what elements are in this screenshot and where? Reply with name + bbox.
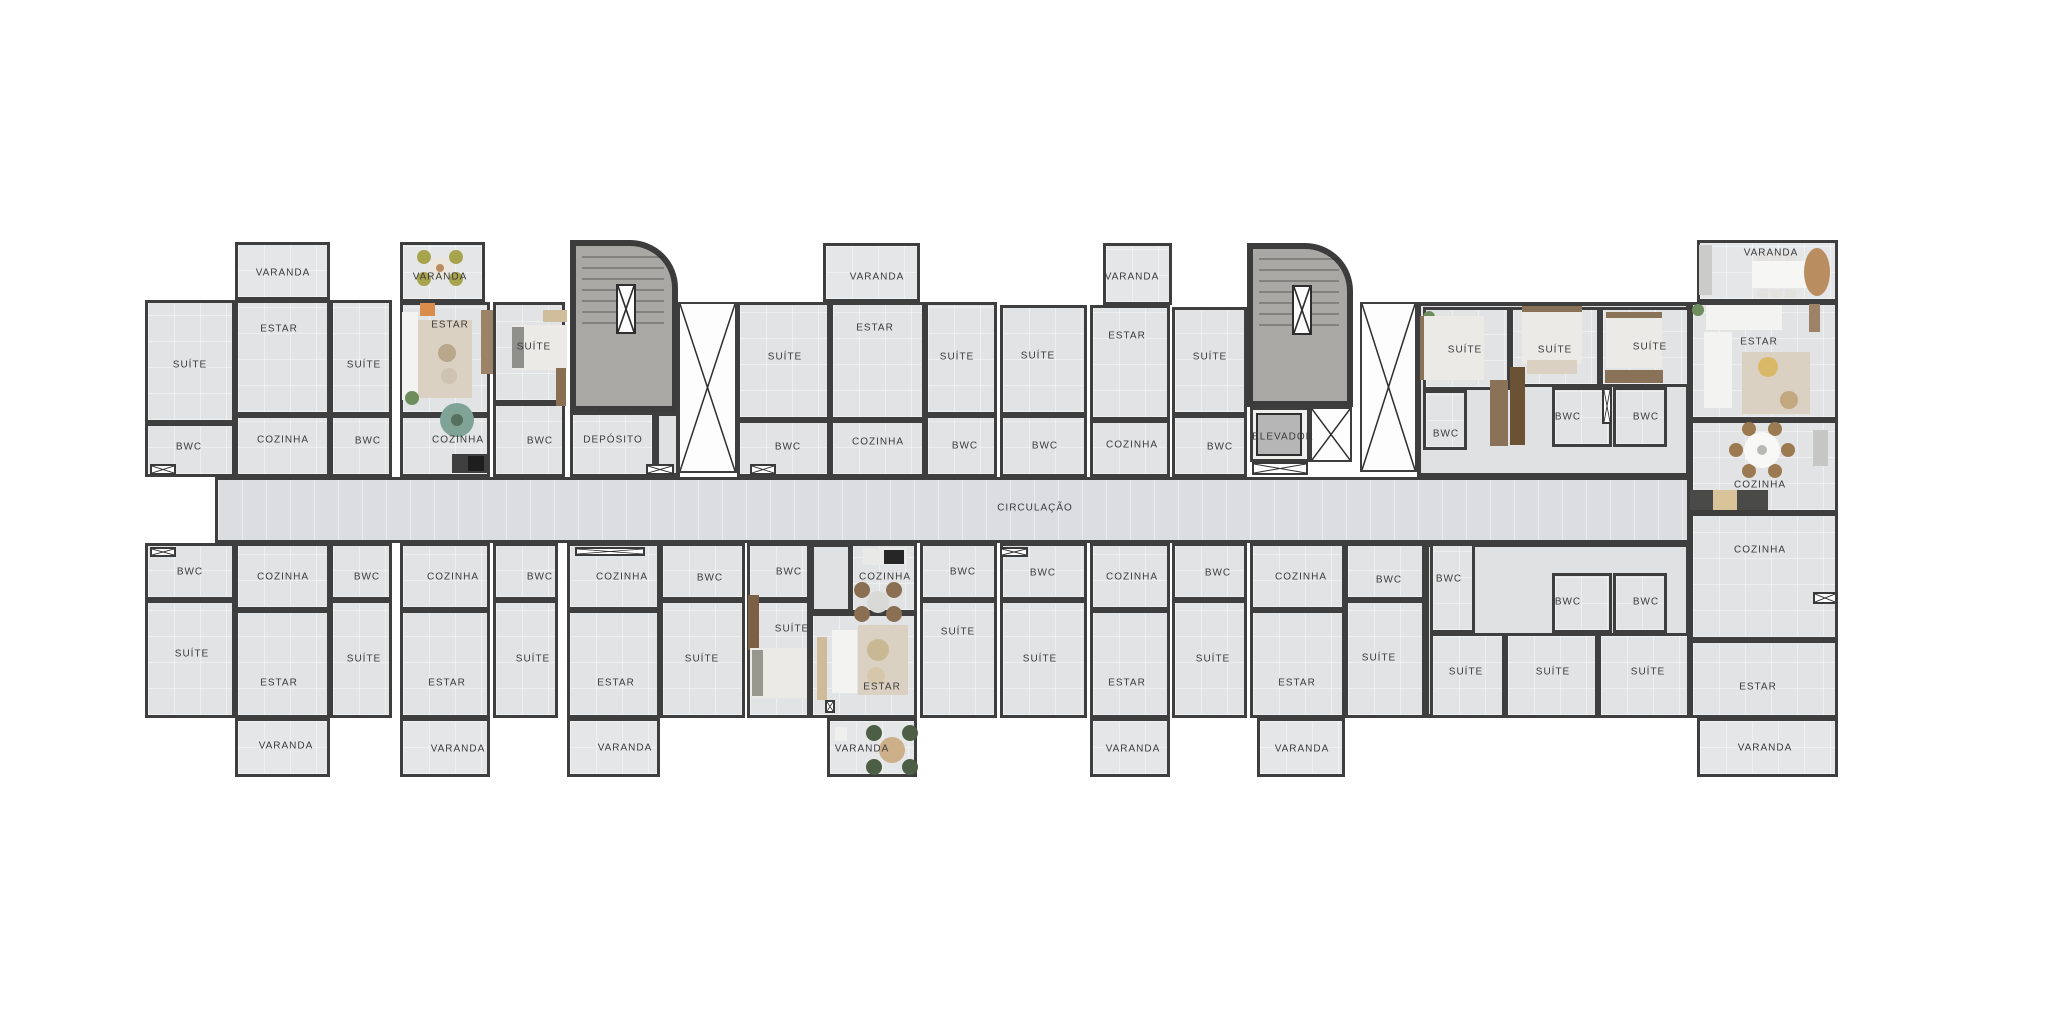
room-label: BWC <box>1205 568 1231 579</box>
room-label: COZINHA <box>859 572 911 583</box>
room-label: SUÍTE <box>1362 653 1396 664</box>
room-label: ESTAR <box>260 678 298 689</box>
room-cozinha <box>830 420 925 477</box>
furniture-round <box>417 250 431 264</box>
room-label: COZINHA <box>1275 572 1327 583</box>
duct-shaft <box>1000 547 1028 557</box>
room-label: BWC <box>1032 441 1058 452</box>
room-estar <box>235 300 330 415</box>
furniture-piece <box>556 368 566 406</box>
room-label: BWC <box>1555 597 1581 608</box>
room-label: SUÍTE <box>517 342 551 353</box>
duct-shaft <box>150 464 176 475</box>
furniture-round <box>886 606 902 622</box>
furniture-piece <box>1757 289 1768 298</box>
furniture-round <box>1781 443 1795 457</box>
furniture-piece <box>748 595 759 650</box>
room-label: VARANDA <box>431 744 486 755</box>
room-label: BWC <box>697 573 723 584</box>
x-brace-icon <box>152 549 174 555</box>
room-label: BWC <box>950 567 976 578</box>
room-label: SUÍTE <box>1023 654 1057 665</box>
furniture-round <box>866 759 882 775</box>
room-label: VARANDA <box>1275 744 1330 755</box>
room-label: BWC <box>1633 597 1659 608</box>
room-label: ESTAR <box>1740 337 1778 348</box>
duct-shaft <box>575 547 645 556</box>
furniture-piece <box>1809 304 1820 332</box>
room-label: BWC <box>527 572 553 583</box>
x-brace-icon <box>577 549 643 554</box>
furniture-round <box>886 582 902 598</box>
furniture-round <box>1758 357 1778 377</box>
room-label: BWC <box>527 436 553 447</box>
room-label: VARANDA <box>1106 744 1161 755</box>
furniture-piece <box>543 310 567 322</box>
room-label: ESTAR <box>856 323 894 334</box>
x-brace-icon <box>1002 549 1026 555</box>
room-label: ESTAR <box>428 678 466 689</box>
x-brace-icon <box>648 466 672 473</box>
room-label: SUÍTE <box>1633 342 1667 353</box>
furniture-round <box>902 759 918 775</box>
void-shaft <box>678 302 737 473</box>
room-label: SUÍTE <box>1536 667 1570 678</box>
room-label: BWC <box>177 567 203 578</box>
room-label: VARANDA <box>1738 743 1793 754</box>
room-label: VARANDA <box>1105 272 1160 283</box>
room-label: BWC <box>952 441 978 452</box>
furniture-piece <box>1771 289 1782 298</box>
furniture-piece <box>1605 370 1663 383</box>
room-label: COZINHA <box>1106 572 1158 583</box>
room-label: DEPÓSITO <box>583 435 643 446</box>
room-label: SUÍTE <box>768 352 802 363</box>
corridor <box>215 477 1690 543</box>
room-label: COZINHA <box>257 435 309 446</box>
room-label: BWC <box>354 572 380 583</box>
void-shaft <box>1360 302 1417 472</box>
room-label: SUÍTE <box>1449 667 1483 678</box>
stair-landing-void <box>616 284 636 334</box>
corridor-label: CIRCULAÇÃO <box>997 503 1073 514</box>
x-brace-icon <box>680 304 735 471</box>
room-suite <box>920 600 997 718</box>
furniture-piece <box>481 310 493 374</box>
room-label: SUÍTE <box>775 624 809 635</box>
furniture-round <box>405 391 419 405</box>
furniture-piece <box>468 456 484 471</box>
room-cozinha <box>235 415 330 477</box>
room-label: COZINHA <box>596 572 648 583</box>
furniture-round <box>449 250 463 264</box>
room-label: ESTAR <box>1108 331 1146 342</box>
duct-shaft <box>646 464 674 475</box>
x-brace-icon <box>827 702 833 711</box>
furniture-piece <box>835 727 847 741</box>
room-label: ESTAR <box>1108 678 1146 689</box>
x-brace-icon <box>1604 390 1610 422</box>
room-label: BWC <box>776 567 802 578</box>
room-label: VARANDA <box>413 272 468 283</box>
furniture-piece <box>1510 367 1525 445</box>
room-label: BWC <box>1555 412 1581 423</box>
x-brace-icon <box>1294 287 1310 333</box>
room-label: SUÍTE <box>1448 345 1482 356</box>
room-label: ESTAR <box>260 324 298 335</box>
furniture-piece <box>752 650 763 696</box>
furniture-round <box>1757 445 1767 455</box>
room-label: VARANDA <box>850 272 905 283</box>
room-label: COZINHA <box>427 572 479 583</box>
stair-landing-void <box>1292 285 1312 335</box>
hall-area <box>810 543 852 613</box>
furniture-round <box>902 725 918 741</box>
furniture-piece <box>1706 305 1782 330</box>
room-label: SUÍTE <box>1538 345 1572 356</box>
duct-shaft <box>1602 388 1612 424</box>
room-label: ESTAR <box>431 320 469 331</box>
room-suite <box>330 300 392 415</box>
room-label: SUÍTE <box>1631 667 1665 678</box>
duct-shaft <box>825 700 835 713</box>
floor-plan-canvas: SUÍTEBWCVARANDAESTARCOZINHASUÍTEBWCVARAN… <box>0 0 2048 1024</box>
room-label: BWC <box>775 442 801 453</box>
room-bwc <box>660 543 745 600</box>
room-label: SUÍTE <box>1193 352 1227 363</box>
room-label: SUÍTE <box>940 352 974 363</box>
furniture-piece <box>1804 248 1830 296</box>
furniture-piece <box>1522 312 1582 364</box>
furniture-piece <box>1704 332 1732 408</box>
duct-shaft <box>1252 462 1308 475</box>
furniture-round <box>867 639 889 661</box>
room-label: ESTAR <box>1739 682 1777 693</box>
duct-shaft <box>1813 592 1837 604</box>
furniture-round <box>1768 464 1782 478</box>
furniture-round <box>854 606 870 622</box>
room-label: SUÍTE <box>1021 351 1055 362</box>
room-estar <box>235 610 330 718</box>
room-label: VARANDA <box>259 741 314 752</box>
room-label: VARANDA <box>598 743 653 754</box>
room-label: VARANDA <box>835 744 890 755</box>
furniture-piece <box>402 312 418 400</box>
furniture-round <box>866 725 882 741</box>
room-label: COZINHA <box>257 572 309 583</box>
room-estar <box>400 610 490 718</box>
x-brace-icon <box>152 466 174 473</box>
duct-shaft <box>150 547 176 557</box>
x-brace-icon <box>1312 409 1350 460</box>
room-label: ESTAR <box>863 682 901 693</box>
room-label: COZINHA <box>852 437 904 448</box>
room-estar <box>1090 610 1170 718</box>
room-label: VARANDA <box>256 268 311 279</box>
room-estar <box>1090 305 1170 420</box>
furniture-round <box>438 344 456 362</box>
duct-shaft <box>750 464 776 475</box>
furniture-piece <box>1752 261 1807 288</box>
furniture-piece <box>1713 490 1737 510</box>
void-shaft <box>1310 407 1352 462</box>
room-label: COZINHA <box>432 435 484 446</box>
x-brace-icon <box>1254 464 1306 473</box>
x-brace-icon <box>1815 594 1835 602</box>
room-estar <box>830 302 925 420</box>
room-label: BWC <box>176 442 202 453</box>
x-brace-icon <box>618 286 634 332</box>
room-label: VARANDA <box>1744 248 1799 259</box>
room-label: BWC <box>1436 574 1462 585</box>
room-label: SUÍTE <box>516 654 550 665</box>
room-label: COZINHA <box>1734 545 1786 556</box>
stairs-block <box>570 240 678 412</box>
room-label: SUÍTE <box>173 360 207 371</box>
room-label: BWC <box>355 436 381 447</box>
room-label: ESTAR <box>1278 678 1316 689</box>
furniture-piece <box>817 637 827 700</box>
furniture-piece <box>1785 289 1796 298</box>
room-label: COZINHA <box>1734 480 1786 491</box>
room-estar <box>1690 640 1838 718</box>
room-label: BWC <box>1030 568 1056 579</box>
stairs-block <box>1247 243 1353 407</box>
furniture-piece <box>420 303 435 316</box>
room-bwc <box>1423 390 1467 450</box>
room-label: BWC <box>1433 429 1459 440</box>
x-brace-icon <box>752 466 774 473</box>
furniture-piece <box>832 630 857 693</box>
room-label: BWC <box>1633 412 1659 423</box>
room-label: SUÍTE <box>685 654 719 665</box>
room-label: SUÍTE <box>1196 654 1230 665</box>
room-estar <box>567 610 660 718</box>
room-label: BWC <box>1207 442 1233 453</box>
room-bwc <box>1430 543 1475 633</box>
furniture-piece <box>1813 430 1828 466</box>
furniture-piece <box>884 550 904 564</box>
room-label: SUÍTE <box>175 649 209 660</box>
room-label: BWC <box>1376 575 1402 586</box>
furniture-round <box>451 414 463 426</box>
room-label: SUÍTE <box>347 360 381 371</box>
room-label: COZINHA <box>1106 440 1158 451</box>
furniture-round <box>441 368 457 384</box>
furniture-round <box>1692 304 1704 316</box>
room-estar <box>1250 610 1345 718</box>
room-label: SUÍTE <box>347 654 381 665</box>
room-cozinha <box>1690 513 1838 640</box>
x-brace-icon <box>1362 304 1415 470</box>
furniture-piece <box>1527 360 1577 374</box>
room-label: ESTAR <box>597 678 635 689</box>
furniture-round <box>867 591 889 613</box>
room-label: ELEVADOR <box>1252 432 1314 443</box>
furniture-piece <box>1490 380 1508 446</box>
room-bwc <box>1345 543 1425 600</box>
room-label: SUÍTE <box>941 627 975 638</box>
furniture-piece <box>1699 245 1712 295</box>
furniture-round <box>1729 443 1743 457</box>
furniture-round <box>1780 391 1798 409</box>
